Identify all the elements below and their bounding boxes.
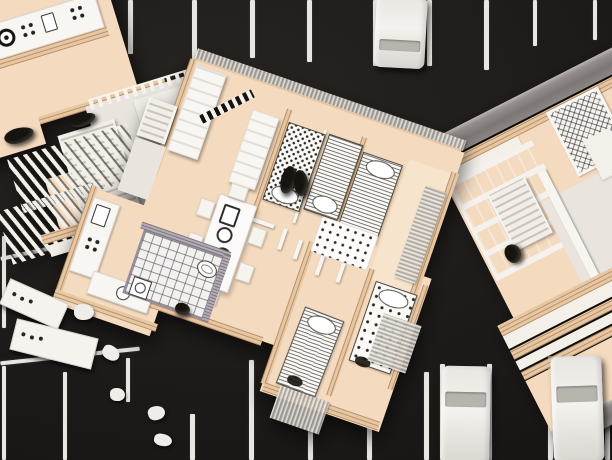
human-figure xyxy=(501,241,524,265)
human-figure xyxy=(173,301,191,317)
human-figures-layer xyxy=(0,0,612,460)
human-figure xyxy=(69,110,97,129)
architectural-model-photo xyxy=(0,0,612,460)
human-figure xyxy=(3,125,36,147)
human-figure xyxy=(293,169,310,196)
